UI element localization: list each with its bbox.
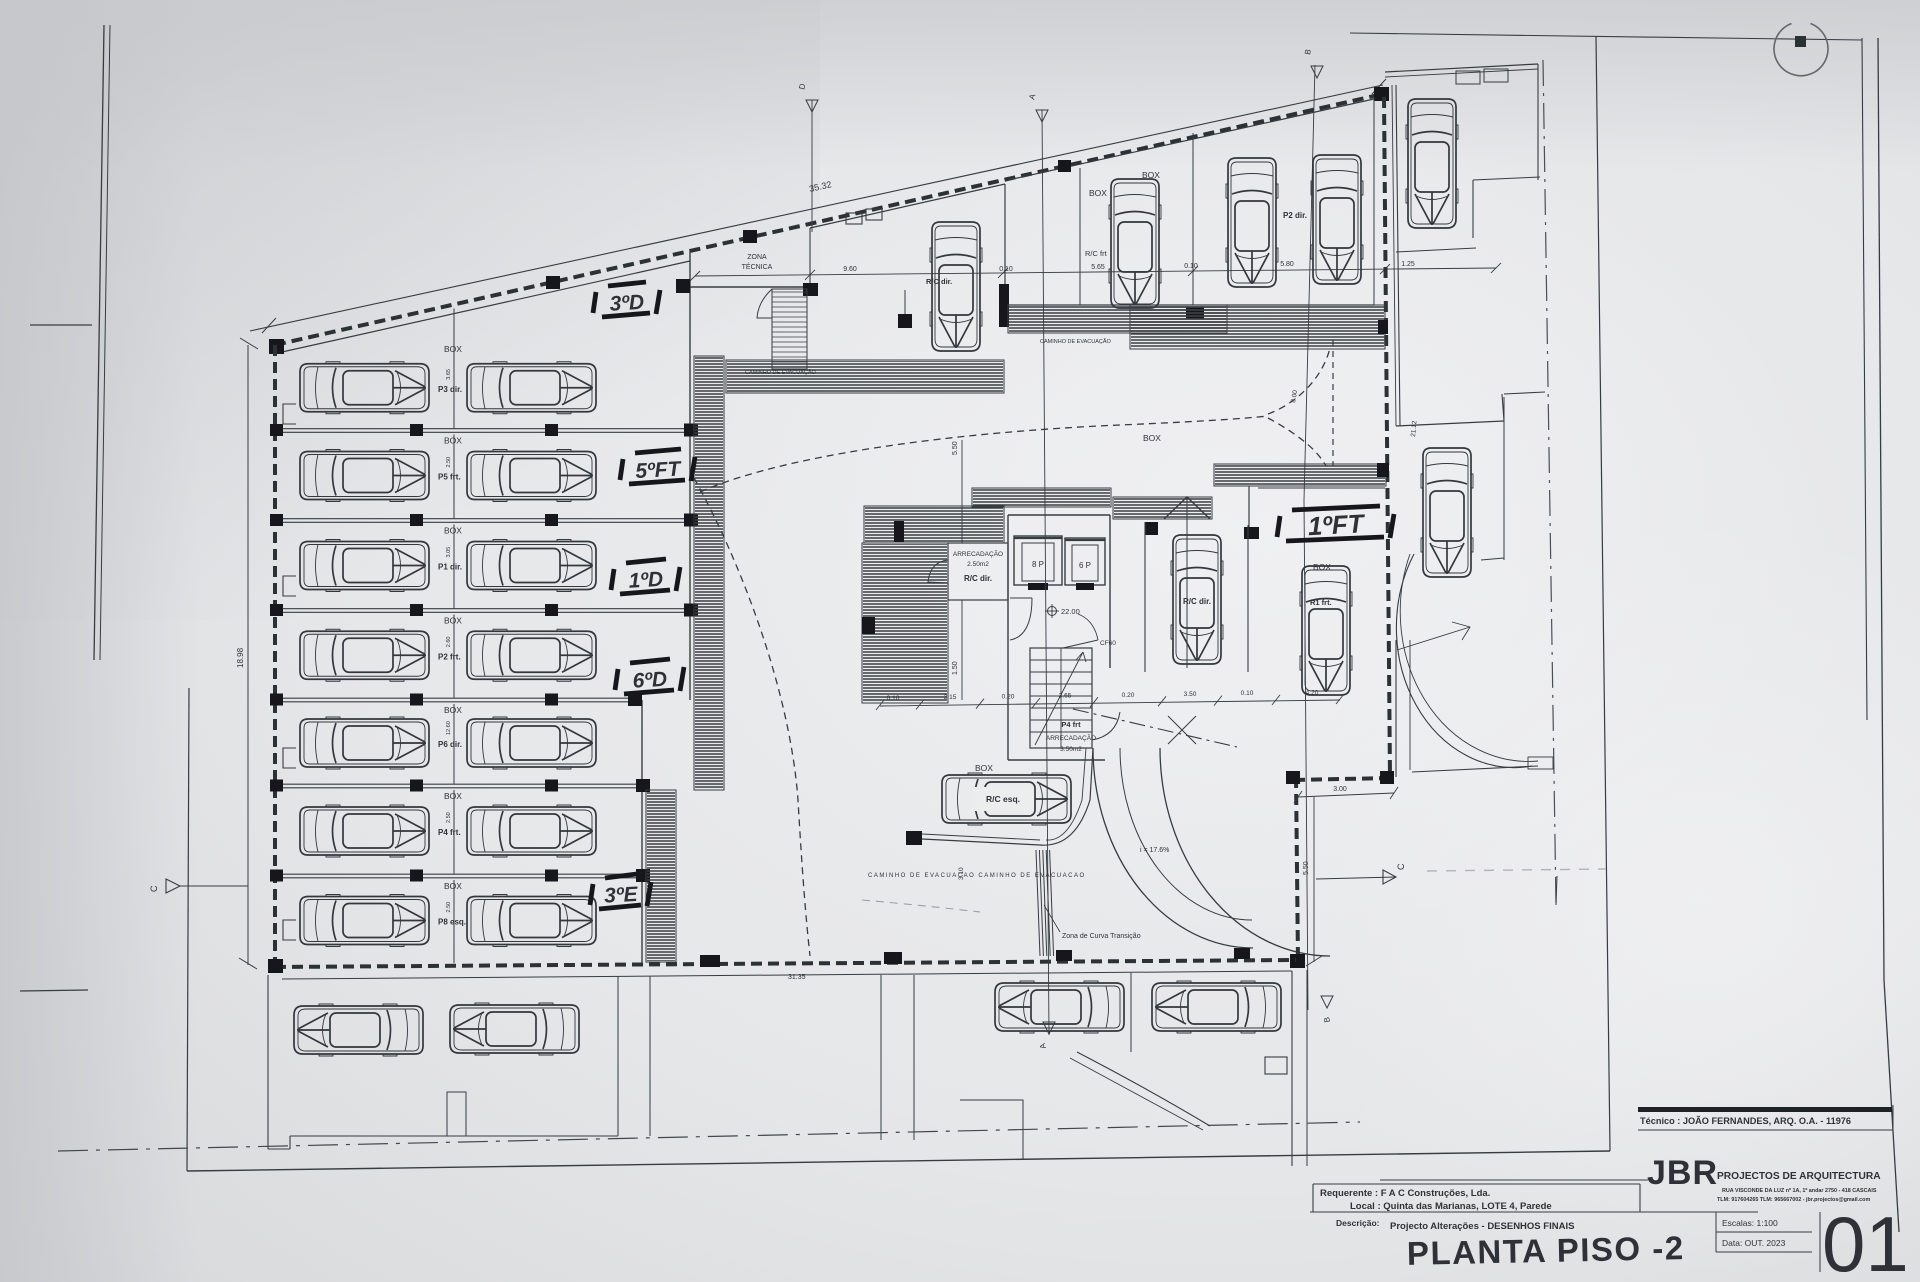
svg-text:Local : Quinta das Marianas, L: Local : Quinta das Marianas, LOTE 4, Par… xyxy=(1350,1201,1552,1212)
svg-text:31.35: 31.35 xyxy=(788,974,806,981)
svg-text:9.60: 9.60 xyxy=(843,266,857,273)
svg-text:BOX: BOX xyxy=(444,526,462,536)
svg-text:P2 frt.: P2 frt. xyxy=(438,652,461,661)
svg-text:BOX: BOX xyxy=(1142,170,1160,180)
svg-text:BOX: BOX xyxy=(444,705,462,715)
svg-text:P8 esq.: P8 esq. xyxy=(438,918,466,927)
svg-text:P4 frt: P4 frt xyxy=(1061,720,1081,729)
svg-text:Requerente : F A C Construçõe: Requerente : F A C Construções, Lda. xyxy=(1320,1188,1490,1199)
svg-text:0.10: 0.10 xyxy=(999,266,1013,273)
svg-text:2.50m2: 2.50m2 xyxy=(967,561,989,568)
svg-text:3.50m2: 3.50m2 xyxy=(1060,746,1082,753)
svg-text:1.50: 1.50 xyxy=(952,661,959,675)
svg-text:CF60: CF60 xyxy=(1100,640,1116,647)
svg-text:Descrição:: Descrição: xyxy=(1336,1218,1380,1228)
svg-text:R/C dir.: R/C dir. xyxy=(1183,597,1211,606)
svg-text:i = 17.6%: i = 17.6% xyxy=(1140,847,1169,854)
svg-text:22.00: 22.00 xyxy=(1061,607,1080,616)
svg-text:JBR: JBR xyxy=(1647,1154,1718,1192)
svg-text:R/C esq.: R/C esq. xyxy=(986,794,1020,804)
svg-text:12.60: 12.60 xyxy=(446,721,452,735)
svg-text:5.65: 5.65 xyxy=(1091,264,1105,271)
svg-text:CAMINHO DE EVACUAÇÃO: CAMINHO DE EVACUAÇÃO xyxy=(1040,338,1112,345)
svg-text:BOX: BOX xyxy=(444,616,462,626)
svg-text:TÉCNICA: TÉCNICA xyxy=(742,262,773,271)
svg-text:0.10: 0.10 xyxy=(887,695,900,702)
svg-text:3.15: 3.15 xyxy=(944,694,957,701)
svg-text:Data: OUT. 2023: Data: OUT. 2023 xyxy=(1722,1238,1786,1248)
svg-text:P6 dir.: P6 dir. xyxy=(438,740,462,749)
svg-text:2.50: 2.50 xyxy=(446,812,452,823)
svg-text:5ºFT: 5ºFT xyxy=(635,458,683,483)
svg-text:8 P: 8 P xyxy=(1032,560,1044,569)
svg-text:18.98: 18.98 xyxy=(236,647,245,668)
svg-text:1.25: 1.25 xyxy=(1401,261,1415,268)
svg-text:2.60: 2.60 xyxy=(446,637,452,648)
svg-text:3.65: 3.65 xyxy=(1059,693,1072,700)
svg-text:3.50: 3.50 xyxy=(1184,691,1197,698)
svg-text:5.50: 5.50 xyxy=(952,441,959,455)
svg-text:Projecto Alterações - DESENHOS: Projecto Alterações - DESENHOS FINAIS xyxy=(1390,1221,1574,1232)
svg-text:BOX: BOX xyxy=(975,763,993,773)
svg-text:BOX: BOX xyxy=(444,881,462,891)
svg-text:0.20: 0.20 xyxy=(1002,693,1015,700)
svg-text:1ºFT: 1ºFT xyxy=(1307,508,1366,541)
svg-text:R1 frt.: R1 frt. xyxy=(1310,598,1332,607)
svg-text:1ºD: 1ºD xyxy=(628,568,664,593)
svg-text:P3 dir.: P3 dir. xyxy=(438,385,462,394)
svg-text:C: C xyxy=(1396,863,1406,870)
svg-text:3ºE: 3ºE xyxy=(604,883,640,908)
svg-text:0.10: 0.10 xyxy=(1241,690,1254,697)
svg-text:Técnico : JOÃO FERNANDES, ARQ.: Técnico : JOÃO FERNANDES, ARQ. O.A. - 11… xyxy=(1640,1116,1851,1126)
svg-text:0.10: 0.10 xyxy=(1184,263,1198,270)
svg-text:BOX: BOX xyxy=(444,344,462,354)
svg-text:ARRECADAÇÃO: ARRECADAÇÃO xyxy=(1046,733,1096,742)
svg-text:3.05: 3.05 xyxy=(446,547,452,558)
svg-text:ARRECADAÇÃO: ARRECADAÇÃO xyxy=(953,549,1003,558)
svg-text:0.20: 0.20 xyxy=(1122,692,1135,699)
svg-text:R/C dir.: R/C dir. xyxy=(964,574,992,583)
svg-text:C: C xyxy=(149,885,159,892)
svg-text:2.50: 2.50 xyxy=(446,902,452,913)
svg-text:P4 frt.: P4 frt. xyxy=(438,828,461,837)
svg-text:3.00: 3.00 xyxy=(1333,786,1347,793)
svg-text:CAMINHO DE EVACUACAO CAMINHO D: CAMINHO DE EVACUACAO CAMINHO DE EVACUACA… xyxy=(868,873,1086,879)
svg-text:PLANTA PISO -2: PLANTA PISO -2 xyxy=(1407,1229,1685,1272)
svg-text:P1 dir.: P1 dir. xyxy=(438,563,462,572)
svg-text:4.20: 4.20 xyxy=(1306,689,1319,696)
svg-text:Zona de Curva Transição: Zona de Curva Transição xyxy=(1062,933,1141,940)
svg-text:ZONA: ZONA xyxy=(747,254,767,261)
svg-text:3.65: 3.65 xyxy=(446,369,452,380)
svg-text:BOX: BOX xyxy=(1089,188,1107,198)
svg-text:BOX: BOX xyxy=(444,791,462,801)
svg-text:01: 01 xyxy=(1822,1200,1909,1282)
svg-text:P2 dir.: P2 dir. xyxy=(1283,211,1307,220)
svg-text:6ºD: 6ºD xyxy=(632,668,668,693)
svg-text:5.80: 5.80 xyxy=(1280,261,1294,268)
svg-text:BOX: BOX xyxy=(1143,433,1161,443)
svg-text:CAMINHO DE EVACUAÇÃO: CAMINHO DE EVACUAÇÃO xyxy=(745,369,817,376)
svg-text:2.50: 2.50 xyxy=(446,457,452,468)
svg-text:Escalas: 1:100: Escalas: 1:100 xyxy=(1722,1218,1778,1228)
svg-text:3.10: 3.10 xyxy=(958,867,965,880)
svg-text:6 P: 6 P xyxy=(1079,561,1091,570)
svg-text:21.12: 21.12 xyxy=(1410,420,1418,437)
svg-text:BOX: BOX xyxy=(444,436,462,446)
svg-text:R/C frt: R/C frt xyxy=(1085,249,1108,258)
svg-text:3ºD: 3ºD xyxy=(609,291,645,316)
svg-text:P5 frt.: P5 frt. xyxy=(438,473,461,482)
svg-text:PROJECTOS DE ARQUITECTURA: PROJECTOS DE ARQUITECTURA xyxy=(1717,1171,1881,1182)
svg-text:BOX: BOX xyxy=(1313,562,1331,572)
svg-text:RUA VISCONDE DA LUZ nº 1A, 1º: RUA VISCONDE DA LUZ nº 1A, 1º andar 2750… xyxy=(1722,1188,1877,1194)
